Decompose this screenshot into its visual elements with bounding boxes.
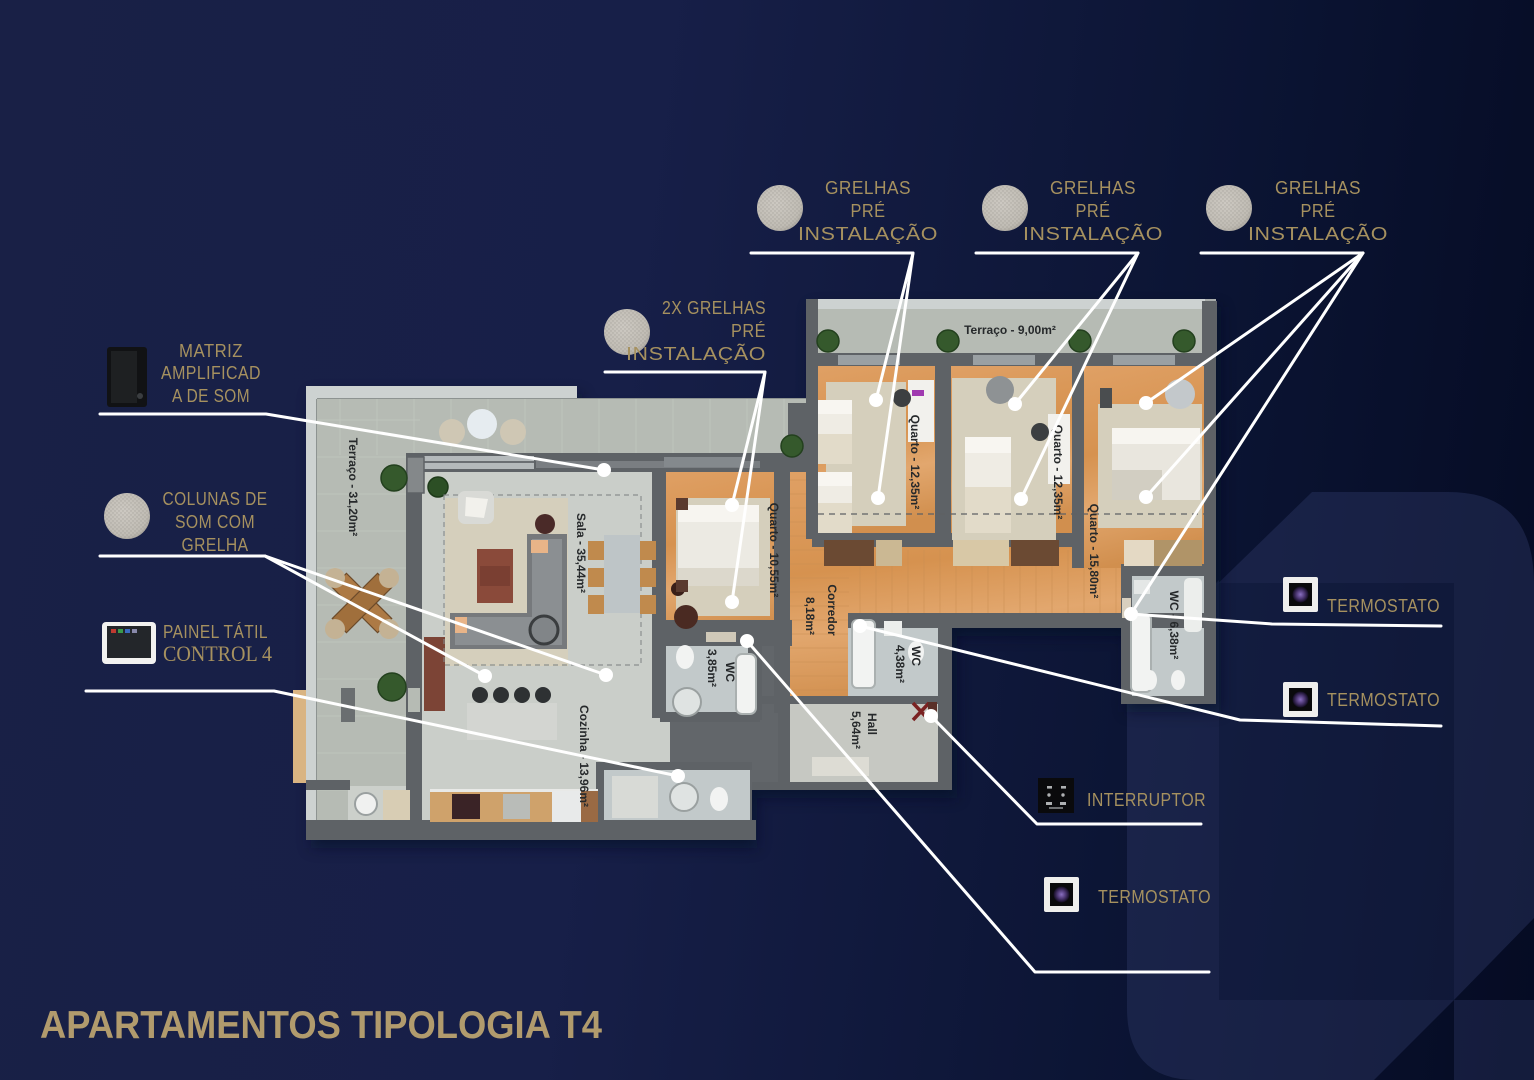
svg-text:2X GRELHAS: 2X GRELHAS — [662, 298, 766, 318]
svg-text:GRELHA: GRELHA — [182, 535, 249, 555]
svg-text:WC: WC — [909, 646, 923, 666]
svg-text:MATRIZ: MATRIZ — [179, 341, 243, 361]
svg-text:3,85m²: 3,85m² — [705, 649, 719, 687]
svg-text:APARTAMENTOS TIPOLOGIA T4: APARTAMENTOS TIPOLOGIA T4 — [40, 1004, 602, 1047]
svg-text:PRÉ: PRÉ — [851, 201, 886, 221]
svg-text:Quarto - 12,35m²: Quarto - 12,35m² — [908, 415, 922, 510]
svg-text:Terraço - 9,00m²: Terraço - 9,00m² — [964, 323, 1056, 337]
svg-text:8,18m²: 8,18m² — [803, 597, 817, 635]
svg-text:GRELHAS: GRELHAS — [1050, 178, 1136, 198]
svg-text:SOM COM: SOM COM — [175, 512, 255, 532]
svg-text:5,64m²: 5,64m² — [849, 711, 863, 749]
svg-text:TERMOSTATO: TERMOSTATO — [1327, 690, 1440, 710]
svg-text:CONTROL 4: CONTROL 4 — [163, 641, 272, 666]
svg-text:TERMOSTATO: TERMOSTATO — [1098, 887, 1211, 907]
svg-text:PRÉ: PRÉ — [1301, 201, 1336, 221]
svg-text:PRÉ: PRÉ — [1076, 201, 1111, 221]
svg-text:INSTALAÇÃO: INSTALAÇÃO — [1248, 223, 1388, 244]
svg-text:Sala - 35,44m²: Sala - 35,44m² — [574, 513, 588, 593]
svg-text:Terraço - 31,20m²: Terraço - 31,20m² — [346, 438, 360, 537]
svg-text:WC: WC — [723, 662, 737, 682]
svg-text:Quarto - 10,55m²: Quarto - 10,55m² — [767, 503, 781, 598]
svg-text:4,38m²: 4,38m² — [893, 645, 907, 683]
svg-text:Corredor: Corredor — [825, 584, 839, 636]
svg-text:PRÉ: PRÉ — [731, 321, 766, 341]
svg-text:PAINEL TÁTIL: PAINEL TÁTIL — [163, 622, 268, 642]
svg-text:INSTALAÇÃO: INSTALAÇÃO — [798, 223, 938, 244]
svg-text:A DE SOM: A DE SOM — [172, 386, 250, 406]
svg-text:INSTALAÇÃO: INSTALAÇÃO — [626, 343, 766, 364]
svg-text:INTERRUPTOR: INTERRUPTOR — [1087, 790, 1206, 810]
svg-text:WC - 6,38m²: WC - 6,38m² — [1167, 591, 1181, 660]
svg-text:Quarto - 15,80m²: Quarto - 15,80m² — [1087, 504, 1101, 599]
svg-text:Quarto - 12,35m²: Quarto - 12,35m² — [1051, 425, 1065, 520]
svg-text:AMPLIFICAD: AMPLIFICAD — [161, 363, 261, 383]
svg-text:GRELHAS: GRELHAS — [825, 178, 911, 198]
svg-text:INSTALAÇÃO: INSTALAÇÃO — [1023, 223, 1163, 244]
svg-text:TERMOSTATO: TERMOSTATO — [1327, 596, 1440, 616]
svg-text:Hall: Hall — [865, 713, 879, 735]
svg-text:COLUNAS DE: COLUNAS DE — [163, 489, 268, 509]
svg-text:GRELHAS: GRELHAS — [1275, 178, 1361, 198]
